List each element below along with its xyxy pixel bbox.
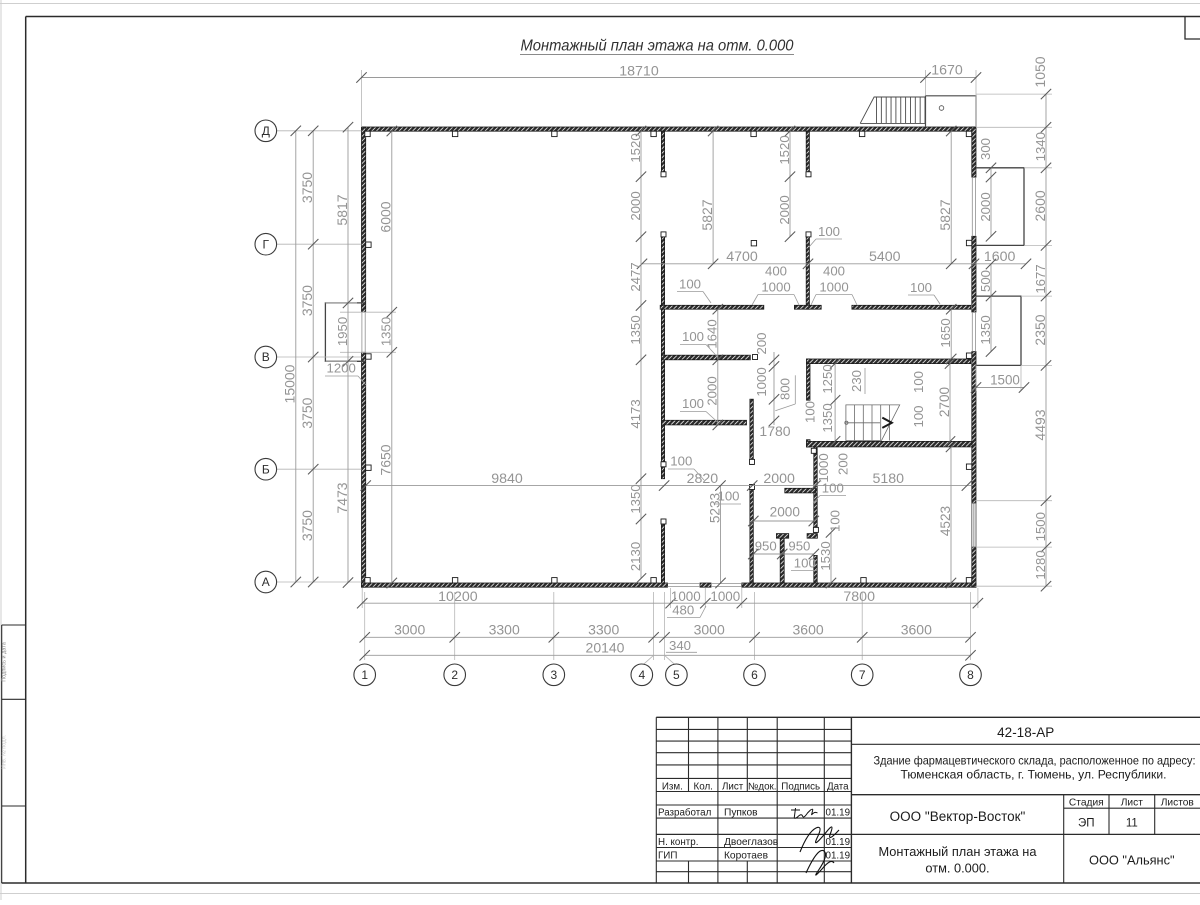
svg-text:4173: 4173	[628, 399, 643, 428]
svg-text:5827: 5827	[937, 199, 953, 230]
svg-text:4700: 4700	[726, 249, 758, 265]
svg-text:2: 2	[451, 668, 458, 682]
svg-text:400: 400	[823, 264, 845, 279]
svg-text:Изм.: Изм.	[662, 782, 683, 793]
svg-text:7650: 7650	[378, 444, 394, 475]
svg-text:1350: 1350	[820, 403, 835, 432]
svg-text:9840: 9840	[491, 471, 523, 487]
svg-text:Н. контр.: Н. контр.	[658, 837, 698, 848]
svg-text:3: 3	[550, 668, 557, 682]
svg-text:1600: 1600	[984, 249, 1016, 265]
svg-text:3300: 3300	[489, 621, 520, 637]
svg-text:Листов: Листов	[1161, 798, 1194, 809]
svg-text:1350: 1350	[628, 315, 643, 344]
svg-text:11: 11	[1126, 818, 1138, 830]
svg-text:Лист: Лист	[1121, 798, 1143, 809]
svg-text:1280: 1280	[1033, 550, 1048, 579]
svg-text:200: 200	[754, 332, 769, 354]
svg-text:300: 300	[978, 138, 993, 160]
svg-text:18710: 18710	[619, 63, 659, 79]
svg-text:отм. 0.000.: отм. 0.000.	[925, 861, 989, 876]
svg-text:6: 6	[751, 668, 758, 682]
svg-text:2000: 2000	[763, 471, 795, 487]
svg-text:42-18-АР: 42-18-АР	[997, 725, 1054, 740]
svg-text:1530: 1530	[818, 541, 833, 570]
svg-text:ООО "Альянс": ООО "Альянс"	[1089, 853, 1175, 868]
svg-text:№док.: №док.	[748, 782, 777, 793]
svg-text:Кол.: Кол.	[694, 782, 713, 793]
svg-text:3600: 3600	[793, 621, 824, 637]
svg-text:1000: 1000	[816, 453, 831, 482]
svg-text:230: 230	[849, 370, 864, 392]
svg-text:1250: 1250	[820, 364, 835, 393]
svg-text:1350: 1350	[628, 484, 643, 513]
svg-text:1340: 1340	[1033, 132, 1048, 161]
svg-text:2477: 2477	[628, 262, 643, 291]
svg-text:Пупков: Пупков	[724, 808, 758, 819]
svg-text:1350: 1350	[379, 317, 394, 346]
svg-text:100: 100	[828, 510, 843, 532]
svg-text:5827: 5827	[699, 199, 715, 230]
svg-text:1: 1	[361, 668, 368, 682]
svg-text:100: 100	[911, 405, 926, 427]
svg-text:Подпись и дата: Подпись и дата	[2, 641, 8, 681]
svg-text:3750: 3750	[299, 510, 315, 541]
svg-text:1670: 1670	[931, 63, 963, 79]
svg-text:5817: 5817	[334, 194, 350, 225]
svg-text:В: В	[262, 350, 270, 364]
svg-text:5180: 5180	[873, 471, 905, 487]
svg-text:8: 8	[967, 668, 974, 682]
svg-text:1050: 1050	[1032, 56, 1048, 87]
svg-text:Монтажный план этажа на отм. 0: Монтажный план этажа на отм. 0.000	[521, 38, 794, 55]
svg-text:2000: 2000	[770, 505, 801, 520]
svg-text:200: 200	[836, 453, 851, 475]
svg-text:100: 100	[910, 280, 932, 295]
svg-text:7800: 7800	[843, 589, 875, 605]
svg-text:1500: 1500	[1033, 512, 1048, 541]
svg-text:4493: 4493	[1032, 409, 1048, 440]
svg-text:7473: 7473	[334, 482, 350, 513]
svg-text:100: 100	[717, 489, 739, 504]
svg-text:100: 100	[682, 396, 704, 411]
svg-text:Стадия: Стадия	[1069, 798, 1104, 809]
svg-text:100: 100	[670, 454, 692, 469]
svg-text:3000: 3000	[394, 621, 425, 637]
svg-text:01.19: 01.19	[826, 837, 851, 848]
svg-text:1650: 1650	[938, 318, 953, 347]
svg-text:Здание фармацевтического склад: Здание фармацевтического склада, располо…	[874, 754, 1196, 768]
svg-text:1000: 1000	[819, 280, 848, 295]
svg-text:1000: 1000	[754, 367, 769, 396]
svg-text:1200: 1200	[327, 360, 356, 375]
svg-text:100: 100	[818, 224, 840, 239]
svg-text:1950: 1950	[335, 317, 350, 346]
svg-text:3750: 3750	[299, 397, 315, 428]
svg-text:100: 100	[803, 401, 818, 423]
svg-text:2820: 2820	[687, 471, 719, 487]
svg-text:Инв. № подл.: Инв. № подл.	[2, 734, 8, 769]
svg-text:100: 100	[679, 277, 701, 292]
svg-text:950: 950	[755, 539, 777, 554]
svg-text:2000: 2000	[628, 191, 643, 220]
svg-text:ЭП: ЭП	[1078, 818, 1095, 830]
svg-text:1350: 1350	[978, 315, 993, 344]
svg-text:7: 7	[859, 668, 866, 682]
svg-text:3600: 3600	[901, 621, 932, 637]
svg-text:2000: 2000	[777, 195, 792, 224]
svg-text:Монтажный план этажа на: Монтажный план этажа на	[879, 844, 1038, 859]
svg-text:Лист: Лист	[722, 782, 744, 793]
svg-text:20140: 20140	[586, 639, 625, 655]
svg-text:10200: 10200	[438, 589, 478, 605]
svg-text:А: А	[262, 575, 270, 589]
svg-text:1000: 1000	[761, 280, 790, 295]
svg-text:3000: 3000	[694, 621, 725, 637]
svg-text:3750: 3750	[299, 172, 315, 203]
svg-text:100: 100	[794, 556, 816, 571]
svg-text:1780: 1780	[759, 423, 790, 439]
svg-text:6000: 6000	[378, 201, 394, 232]
svg-text:340: 340	[669, 638, 691, 653]
svg-text:Двоеглазов: Двоеглазов	[724, 837, 778, 848]
svg-text:15000: 15000	[282, 364, 298, 403]
svg-text:01.19: 01.19	[826, 808, 851, 819]
svg-text:400: 400	[765, 264, 787, 279]
svg-text:100: 100	[822, 481, 844, 496]
svg-text:950: 950	[788, 539, 810, 554]
svg-text:3750: 3750	[299, 285, 315, 316]
svg-text:1000: 1000	[710, 589, 740, 604]
svg-text:3300: 3300	[588, 621, 619, 637]
svg-text:1677: 1677	[1033, 264, 1048, 293]
svg-text:Тюменская область, г. Тюмень,: Тюменская область, г. Тюмень, ул. Респуб…	[901, 768, 1167, 782]
svg-text:01.19: 01.19	[826, 851, 851, 862]
svg-text:100: 100	[911, 371, 926, 393]
svg-text:Коротаев: Коротаев	[724, 851, 768, 862]
svg-text:Б: Б	[262, 462, 270, 476]
svg-text:2130: 2130	[628, 542, 643, 571]
svg-text:100: 100	[682, 329, 704, 344]
svg-text:480: 480	[672, 603, 694, 618]
svg-text:Разработал: Разработал	[658, 808, 712, 819]
svg-text:Дата: Дата	[827, 782, 849, 793]
svg-text:5400: 5400	[869, 249, 901, 265]
svg-text:2600: 2600	[1032, 190, 1048, 221]
svg-text:1500: 1500	[990, 373, 1020, 388]
svg-text:1520: 1520	[777, 135, 792, 164]
svg-text:Д: Д	[262, 124, 270, 138]
svg-text:Подпись: Подпись	[781, 782, 820, 793]
svg-text:4523: 4523	[938, 506, 953, 536]
svg-text:2700: 2700	[937, 386, 952, 417]
svg-text:500: 500	[978, 270, 993, 292]
svg-text:4: 4	[638, 668, 645, 682]
svg-text:1640: 1640	[705, 319, 720, 348]
svg-text:5: 5	[673, 668, 680, 682]
svg-text:2000: 2000	[978, 192, 993, 221]
svg-text:ГИП: ГИП	[658, 851, 677, 862]
svg-text:ООО "Вектор-Восток": ООО "Вектор-Восток"	[890, 809, 1026, 824]
svg-text:2350: 2350	[1032, 314, 1048, 345]
svg-text:800: 800	[778, 378, 793, 400]
svg-text:1520: 1520	[628, 133, 643, 162]
svg-text:Г: Г	[263, 237, 270, 251]
svg-text:2000: 2000	[705, 376, 720, 405]
